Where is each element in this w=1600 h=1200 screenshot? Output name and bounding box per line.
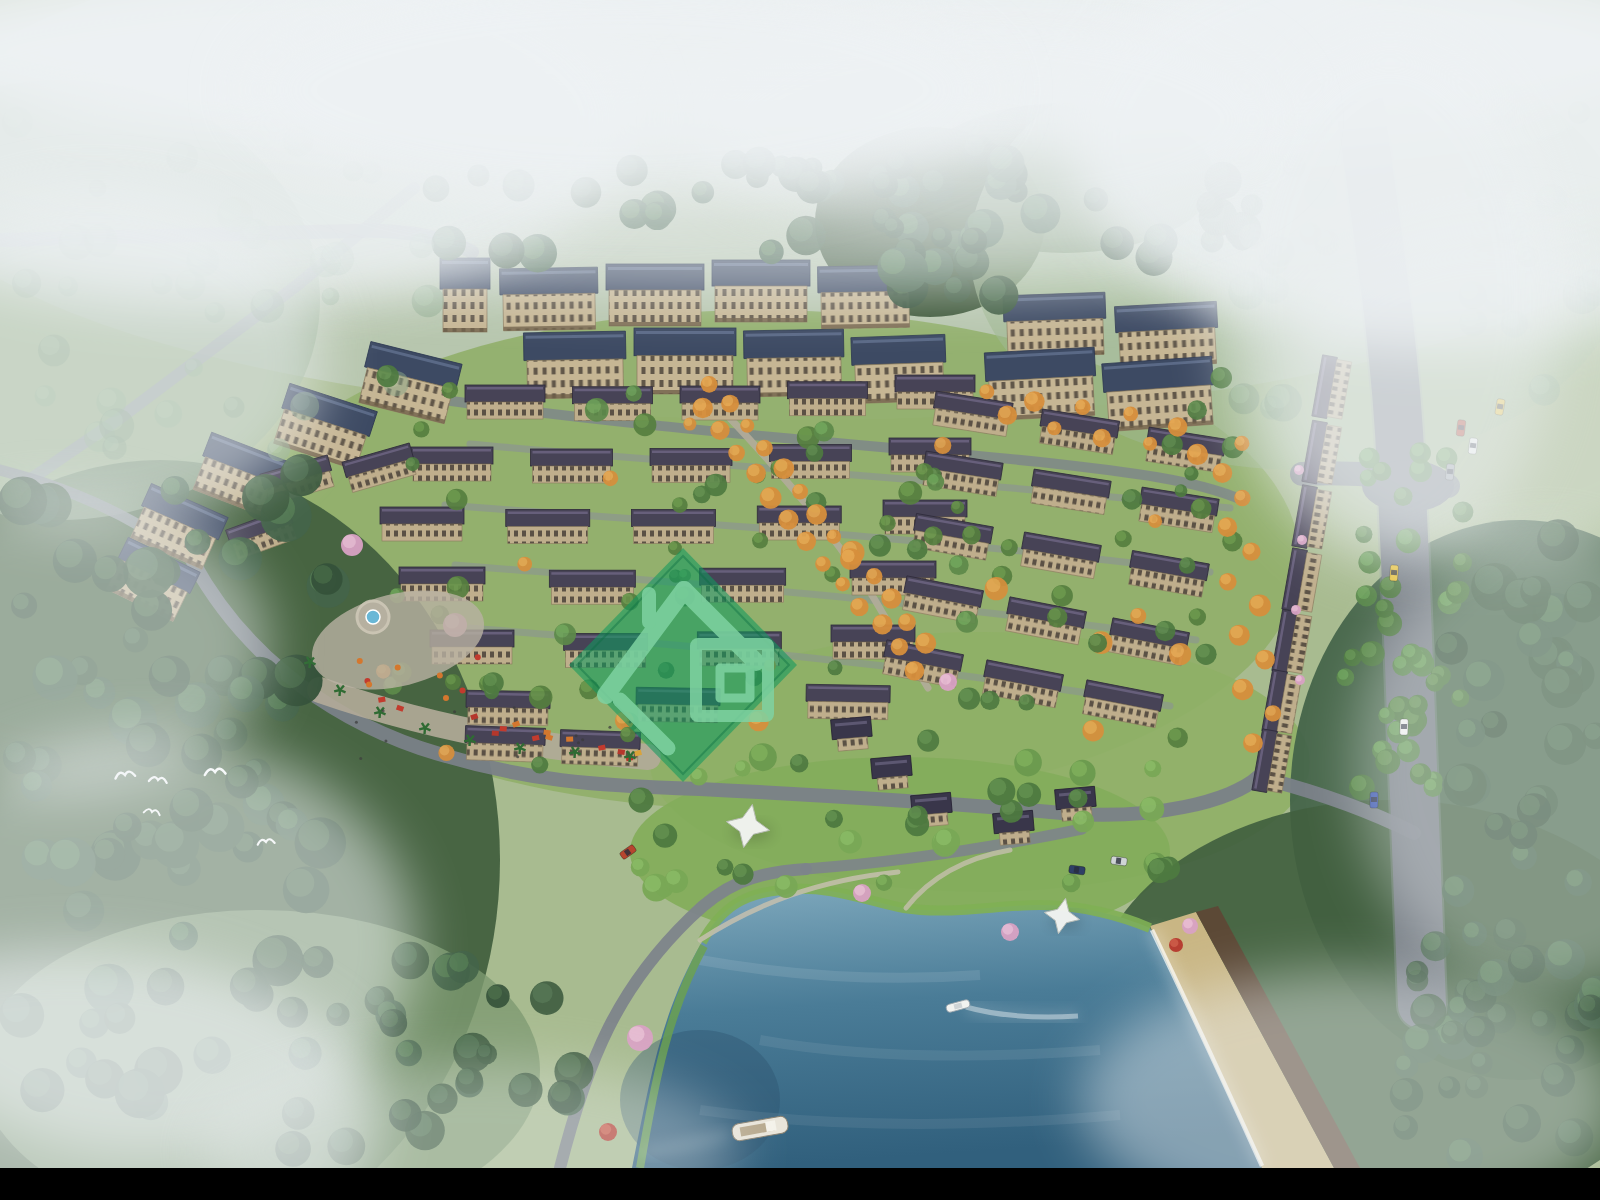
tree xyxy=(629,788,654,813)
tree xyxy=(1051,585,1073,607)
tree xyxy=(603,471,619,487)
tree-highlight xyxy=(1048,422,1056,430)
tree xyxy=(554,623,576,645)
tree-highlight xyxy=(1580,996,1596,1012)
tree-highlight xyxy=(936,830,952,846)
roof-ridge xyxy=(891,440,969,443)
tree xyxy=(1187,400,1207,420)
tree-highlight xyxy=(343,535,356,548)
person xyxy=(575,734,578,737)
tree-highlight xyxy=(807,445,818,456)
tree xyxy=(828,660,843,675)
tree-highlight xyxy=(1230,626,1243,639)
tree-highlight xyxy=(694,399,706,411)
tree-highlight xyxy=(1169,418,1181,430)
car-windshield xyxy=(1074,867,1080,874)
tree-highlight xyxy=(518,557,527,566)
roof-ridge xyxy=(702,570,784,573)
tree xyxy=(530,981,564,1015)
tree xyxy=(1232,679,1253,700)
tree xyxy=(917,730,939,752)
roof-ridge xyxy=(682,388,758,391)
tree-highlight xyxy=(964,527,975,538)
tree-highlight xyxy=(917,634,930,647)
townhouse-row xyxy=(506,509,590,543)
tree xyxy=(1243,733,1263,753)
facade-base xyxy=(609,322,701,326)
tree xyxy=(797,532,816,551)
townhouse-row xyxy=(531,449,613,483)
tree-highlight xyxy=(935,438,945,448)
tree-highlight xyxy=(751,745,768,762)
tree-highlight xyxy=(1176,485,1184,493)
tree xyxy=(756,440,773,457)
tree-highlight xyxy=(1116,531,1126,541)
tree-highlight xyxy=(587,399,601,413)
tree xyxy=(1168,417,1187,436)
tree xyxy=(1047,607,1067,627)
tree-highlight xyxy=(532,983,552,1003)
tree xyxy=(956,611,978,633)
tree xyxy=(1242,543,1260,561)
tree xyxy=(631,858,650,877)
tree-highlight xyxy=(1235,491,1245,501)
tree xyxy=(482,672,503,693)
tree xyxy=(728,445,745,462)
tree-highlight xyxy=(1183,919,1193,929)
roof-ridge xyxy=(852,563,934,566)
tree-highlight xyxy=(1016,750,1033,767)
tree-highlight xyxy=(1234,680,1247,693)
market-stall xyxy=(617,749,625,755)
tree xyxy=(806,504,827,525)
tree-highlight xyxy=(314,565,333,584)
market-stall xyxy=(566,737,573,742)
tree-highlight xyxy=(1131,609,1141,619)
tree xyxy=(413,421,429,437)
tree xyxy=(1179,557,1196,574)
roof-ridge xyxy=(790,384,866,387)
umbrella xyxy=(475,654,481,660)
apartment-building xyxy=(1102,356,1216,432)
letterbox-layer xyxy=(0,1168,1600,1200)
tree-highlight xyxy=(1214,464,1226,476)
tree-highlight xyxy=(791,755,802,766)
tree xyxy=(1265,705,1281,721)
tree-highlight xyxy=(870,536,883,549)
tree xyxy=(1337,668,1355,686)
person xyxy=(513,706,516,709)
tree-highlight xyxy=(446,675,456,685)
tree xyxy=(872,614,892,634)
facade xyxy=(533,466,611,483)
person xyxy=(577,741,580,744)
tree xyxy=(446,489,468,511)
tree xyxy=(1014,749,1042,777)
tree-highlight xyxy=(283,456,308,481)
tree xyxy=(806,444,824,462)
umbrella xyxy=(366,681,372,687)
facade xyxy=(508,526,588,543)
tree-highlight xyxy=(414,422,424,432)
tree-highlight xyxy=(1169,728,1181,740)
tree xyxy=(692,398,712,418)
umbrella xyxy=(437,673,443,679)
tree xyxy=(891,638,909,656)
tree-highlight xyxy=(1157,622,1169,634)
tree-highlight xyxy=(718,860,728,870)
facade-base xyxy=(443,328,487,332)
roof xyxy=(831,716,873,739)
tree xyxy=(447,951,479,983)
letterbox-bar xyxy=(0,1168,1600,1200)
tree xyxy=(664,869,688,893)
tree-highlight xyxy=(906,662,918,674)
tree-highlight xyxy=(982,692,994,704)
tree-highlight xyxy=(952,501,960,509)
tree-highlight xyxy=(1076,400,1085,409)
tree-highlight xyxy=(673,498,682,507)
tree xyxy=(1082,720,1104,742)
car-windshield xyxy=(1116,858,1122,865)
tree-highlight xyxy=(666,870,680,884)
tree-highlight xyxy=(881,516,891,526)
tree xyxy=(749,743,777,771)
tree xyxy=(1218,517,1238,537)
tree xyxy=(979,384,994,399)
tree-highlight xyxy=(706,475,720,489)
tree xyxy=(1169,643,1191,665)
tree-highlight xyxy=(1257,651,1269,663)
tree xyxy=(1255,650,1275,670)
roof-ridge xyxy=(533,451,611,454)
tree xyxy=(405,457,419,471)
tree-highlight xyxy=(1212,368,1225,381)
tree xyxy=(627,1025,653,1051)
tree-highlight xyxy=(980,385,989,394)
tree xyxy=(838,830,862,854)
tree-highlight xyxy=(852,599,863,610)
tree xyxy=(908,806,928,826)
apartment-building xyxy=(634,328,736,394)
tree-highlight xyxy=(807,493,819,505)
tree-highlight xyxy=(604,471,613,480)
tree-highlight xyxy=(986,578,1000,592)
tree-highlight xyxy=(892,639,903,650)
tree-highlight xyxy=(741,419,749,427)
townhouse-row xyxy=(632,510,716,544)
tree-highlight xyxy=(478,1045,490,1057)
tree-highlight xyxy=(815,422,827,434)
tree xyxy=(1219,573,1237,591)
tree-highlight xyxy=(842,549,855,562)
tree-highlight xyxy=(1019,784,1034,799)
tree xyxy=(341,534,363,556)
tree-highlight xyxy=(826,811,837,822)
tree-highlight xyxy=(1219,518,1231,530)
tree-highlight xyxy=(734,865,747,878)
facade-base xyxy=(715,318,807,322)
tree xyxy=(1344,649,1362,667)
tree xyxy=(898,613,916,631)
tree xyxy=(1191,498,1212,519)
tree-highlight xyxy=(1149,859,1164,874)
tree-highlight xyxy=(722,396,733,407)
market-stall xyxy=(500,726,507,732)
facade xyxy=(467,402,543,419)
facade xyxy=(413,464,491,481)
tree-highlight xyxy=(748,465,760,477)
tree xyxy=(1187,444,1208,465)
tree xyxy=(775,875,798,898)
tree-highlight xyxy=(909,807,921,819)
tree-highlight xyxy=(1070,790,1081,801)
tree xyxy=(853,884,871,902)
tree-highlight xyxy=(1298,536,1304,542)
tree-highlight xyxy=(1084,721,1097,734)
tree-highlight xyxy=(836,578,845,587)
tree-highlight xyxy=(989,779,1006,796)
tree-highlight xyxy=(874,615,886,627)
umbrella xyxy=(443,695,449,701)
tree-highlight xyxy=(829,661,838,670)
person xyxy=(581,738,584,741)
tree-highlight xyxy=(1071,761,1087,777)
tree-highlight xyxy=(644,875,661,892)
tree xyxy=(1017,782,1041,806)
facade xyxy=(634,527,714,544)
tree-highlight xyxy=(1026,392,1038,404)
tree-highlight xyxy=(1094,430,1105,441)
tree xyxy=(814,421,835,442)
tree-highlight xyxy=(1053,586,1066,599)
tree-highlight xyxy=(776,876,790,890)
tree-highlight xyxy=(632,859,643,870)
tree xyxy=(1143,437,1157,451)
tree xyxy=(1213,463,1233,483)
tree-highlight xyxy=(669,542,677,550)
tree-highlight xyxy=(736,761,746,771)
tree-highlight xyxy=(780,511,792,523)
townhouse-row xyxy=(465,385,545,419)
tree-highlight xyxy=(1266,706,1276,716)
tree xyxy=(732,864,753,885)
tree-highlight xyxy=(684,418,692,426)
tree xyxy=(985,577,1008,600)
roof-ridge xyxy=(467,387,543,390)
tree-highlight xyxy=(1220,574,1231,585)
tree-highlight xyxy=(1049,608,1061,620)
tree-highlight xyxy=(1020,695,1030,705)
tree-highlight xyxy=(867,569,877,579)
tree-highlight xyxy=(757,441,767,451)
tree-highlight xyxy=(635,414,649,428)
roof-ridge xyxy=(636,331,734,334)
tree-highlight xyxy=(840,831,854,845)
tree-highlight xyxy=(928,474,939,485)
tree xyxy=(633,413,656,436)
tree xyxy=(311,563,342,594)
tree xyxy=(962,526,981,545)
tree-highlight xyxy=(1338,669,1349,680)
tree-highlight xyxy=(531,687,545,701)
tree xyxy=(517,557,532,572)
tree-highlight xyxy=(378,366,391,379)
tree xyxy=(907,539,928,560)
tree-highlight xyxy=(1357,586,1370,599)
tree xyxy=(531,756,548,773)
tree xyxy=(1295,675,1305,685)
tree-highlight xyxy=(775,459,787,471)
tree xyxy=(1297,535,1307,545)
person xyxy=(359,757,362,760)
tree xyxy=(905,661,925,681)
tree xyxy=(1144,760,1161,777)
tree-highlight xyxy=(448,577,462,591)
tree-highlight xyxy=(448,490,461,503)
tree-highlight xyxy=(1089,634,1100,645)
tree xyxy=(927,473,945,491)
tree-highlight xyxy=(1185,467,1194,476)
tree xyxy=(1182,918,1198,934)
tree-highlight xyxy=(1197,645,1210,658)
tree-highlight xyxy=(1345,649,1356,660)
tree xyxy=(1139,796,1164,821)
tree xyxy=(1249,595,1271,617)
tree xyxy=(412,285,445,318)
tree-highlight xyxy=(798,533,810,545)
tree xyxy=(1375,599,1394,618)
tree-highlight xyxy=(999,406,1011,418)
tree xyxy=(585,398,609,422)
tree xyxy=(1148,514,1162,528)
tree xyxy=(934,828,960,854)
tree xyxy=(998,405,1017,424)
tree-highlight xyxy=(621,728,630,737)
tree xyxy=(1162,434,1183,455)
tree xyxy=(1122,489,1143,510)
tree-highlight xyxy=(275,657,306,688)
tree xyxy=(790,754,808,772)
facade xyxy=(466,743,543,763)
car xyxy=(1111,856,1128,866)
tree xyxy=(1062,874,1081,893)
tree xyxy=(1155,621,1175,641)
tree xyxy=(987,777,1015,805)
person xyxy=(382,709,385,712)
tree-highlight xyxy=(443,383,453,393)
tree-highlight xyxy=(1145,761,1155,771)
tree xyxy=(746,464,766,484)
tree xyxy=(441,382,458,399)
tree-highlight xyxy=(1180,558,1190,568)
tree xyxy=(1068,789,1087,808)
tree xyxy=(1024,391,1045,412)
person xyxy=(608,726,611,729)
tree xyxy=(915,633,936,654)
tree xyxy=(1234,490,1250,506)
umbrella xyxy=(357,658,363,664)
tree xyxy=(958,688,980,710)
tree-highlight xyxy=(919,731,932,744)
tree xyxy=(445,674,461,690)
roof-ridge xyxy=(551,572,633,575)
facade xyxy=(999,831,1030,846)
tree-highlight xyxy=(925,527,936,538)
tree-highlight xyxy=(1063,875,1074,886)
tree xyxy=(1001,923,1019,941)
tree xyxy=(866,568,882,584)
tree-highlight xyxy=(816,557,825,566)
tree xyxy=(717,859,734,876)
tree-highlight xyxy=(702,377,712,387)
tree-highlight xyxy=(908,540,920,552)
tree-highlight xyxy=(629,1026,645,1042)
tree-highlight xyxy=(808,505,820,517)
tree xyxy=(1115,530,1132,547)
roof-ridge xyxy=(634,512,714,515)
market-stall xyxy=(492,731,499,736)
tree xyxy=(1088,634,1107,653)
roof-ridge xyxy=(897,377,973,380)
tree-highlight xyxy=(1171,644,1184,657)
tree xyxy=(815,556,830,571)
tree-highlight xyxy=(1002,540,1012,550)
townhouse-row xyxy=(680,386,760,420)
facade xyxy=(503,293,596,331)
tree-highlight xyxy=(960,689,973,702)
tree xyxy=(869,535,891,557)
tree xyxy=(898,481,922,505)
umbrella xyxy=(459,688,465,694)
tree xyxy=(701,376,718,393)
tree xyxy=(876,874,893,891)
tree xyxy=(672,497,688,513)
tree xyxy=(1147,858,1172,883)
tree-highlight xyxy=(414,286,434,306)
tree-highlight xyxy=(1250,596,1263,609)
tree xyxy=(1018,694,1034,710)
tree-highlight xyxy=(1244,544,1255,555)
tree xyxy=(951,501,964,514)
tree xyxy=(879,515,895,531)
car-windshield xyxy=(1391,570,1397,575)
tree xyxy=(486,984,510,1008)
tree-highlight xyxy=(1188,445,1201,458)
tree-highlight xyxy=(828,530,837,539)
tree-highlight xyxy=(488,985,502,999)
tree-highlight xyxy=(627,386,637,396)
tree-highlight xyxy=(798,427,812,441)
tree xyxy=(1047,421,1061,435)
tree-highlight xyxy=(729,445,739,455)
tree-highlight xyxy=(1123,490,1135,502)
facade xyxy=(877,776,908,791)
tree-highlight xyxy=(877,875,887,885)
facade xyxy=(443,289,487,332)
tree xyxy=(840,548,862,570)
tree-highlight xyxy=(1245,734,1257,746)
tree-highlight xyxy=(900,482,914,496)
townhouse-row xyxy=(380,507,464,541)
facade xyxy=(808,701,888,719)
tree-highlight xyxy=(793,484,802,493)
tree xyxy=(1291,605,1301,615)
tree-highlight xyxy=(854,885,865,896)
tree-highlight xyxy=(950,556,962,568)
tree xyxy=(1189,608,1206,625)
tree-highlight xyxy=(1074,812,1087,825)
